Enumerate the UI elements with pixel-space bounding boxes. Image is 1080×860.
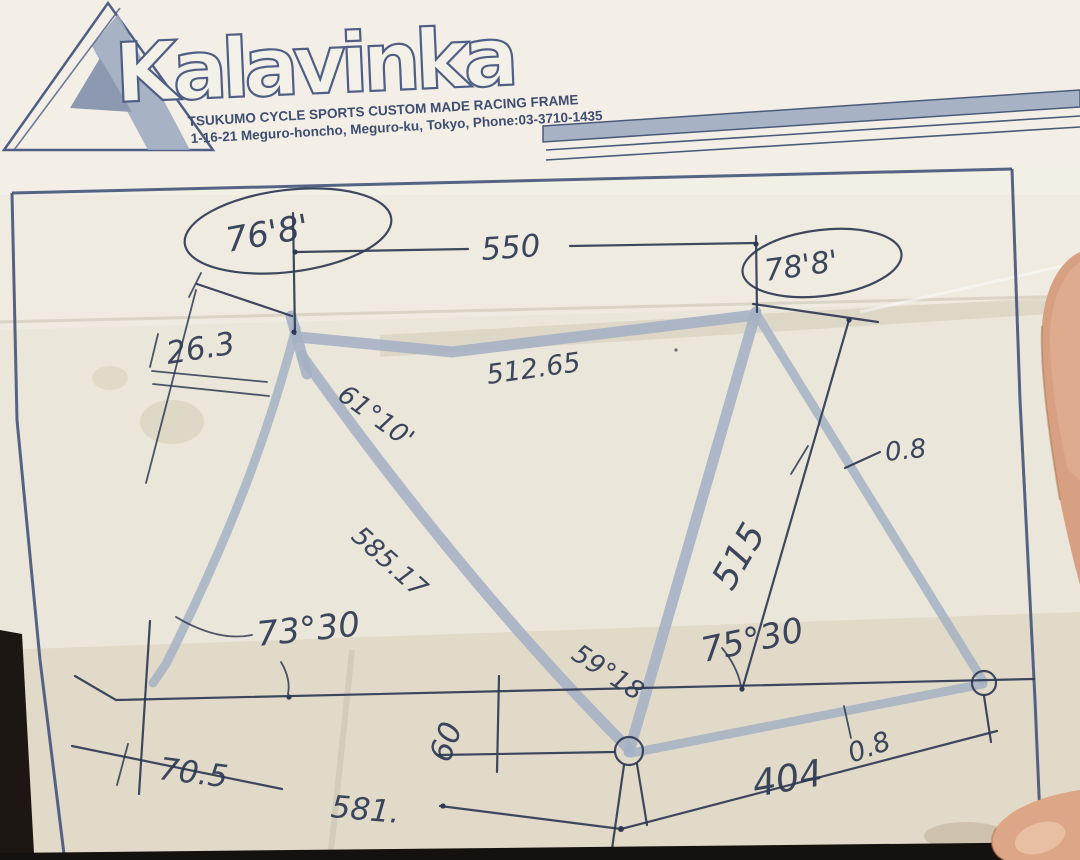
drawing-canvas: Kalavinka TSUKUMO CYCLE SPORTS CUSTOM MA… (0, 0, 1080, 860)
measurement-front-center: 581. (329, 789, 401, 831)
photo-of-frame-order-sheet: Kalavinka TSUKUMO CYCLE SPORTS CUSTOM MA… (0, 0, 1080, 860)
measurement-seat-offset: 0.8 (884, 434, 928, 468)
measurement-top-tube: 550 (480, 228, 542, 268)
